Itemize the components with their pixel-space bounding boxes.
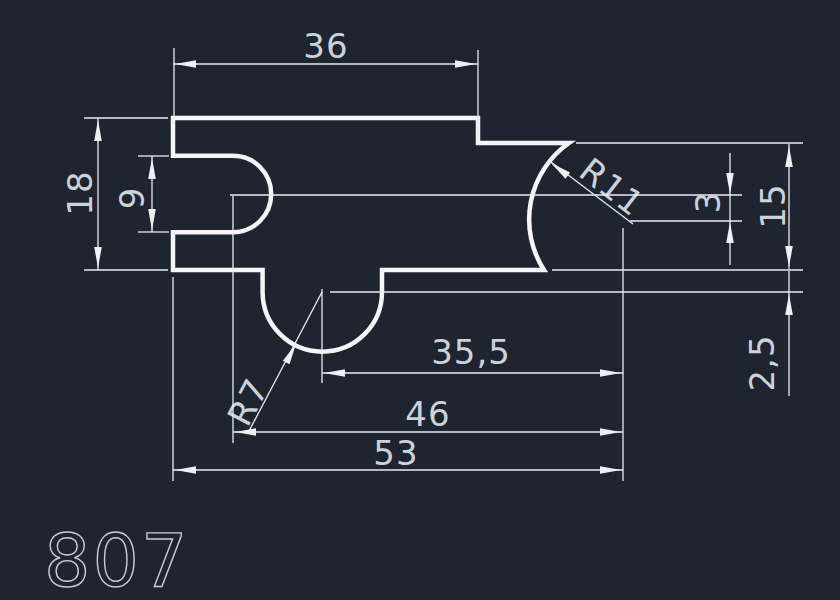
- dim-arrowhead: [235, 428, 256, 436]
- dimension-radius-r11: R11: [549, 150, 652, 225]
- dim-arrowhead: [600, 466, 621, 474]
- dim-arrowhead: [785, 294, 793, 315]
- dim-arrowhead: [785, 146, 793, 167]
- dim-arrowhead: [726, 222, 734, 243]
- dim-mid-length-label: 46: [405, 394, 450, 434]
- dim-arrowhead: [785, 246, 793, 267]
- dim-arrowhead: [148, 158, 156, 179]
- dim-arrowhead: [175, 466, 196, 474]
- dim-arrowhead: [94, 120, 102, 141]
- dimension-slot-height: 9: [112, 156, 169, 232]
- radius-r7-label: R7: [219, 372, 277, 433]
- cad-drawing-canvas[interactable]: 36 18 9 R11 3 15: [0, 0, 840, 600]
- dim-top-width-label: 36: [303, 26, 348, 66]
- dim-center-offset-label: 3: [688, 191, 728, 214]
- dimension-top-width: 36: [173, 26, 478, 141]
- dim-arrowhead: [600, 369, 621, 377]
- dimension-center-distance: 35,5: [322, 228, 623, 481]
- dim-step-depth-label: 2,5: [742, 334, 782, 391]
- dimension-center-offset: 3: [230, 153, 742, 265]
- dimension-mid-length: 46: [233, 196, 623, 443]
- dim-arrowhead: [455, 60, 476, 68]
- dimension-step-depth: 2,5: [330, 271, 803, 396]
- dimension-radius-r7: R7: [219, 292, 322, 432]
- dim-slot-height-label: 9: [112, 187, 152, 210]
- radius-r11-label: R11: [572, 150, 652, 225]
- dim-left-height-label: 18: [60, 170, 100, 215]
- dim-arrowhead: [175, 60, 196, 68]
- dim-arrowhead: [324, 369, 345, 377]
- dim-center-distance-label: 35,5: [431, 332, 511, 372]
- dim-arrowhead: [148, 209, 156, 230]
- dim-total-length-label: 53: [373, 433, 418, 473]
- dim-arrowhead: [94, 247, 102, 268]
- dim-arrowhead: [600, 428, 621, 436]
- drawing-sheet: 36 18 9 R11 3 15: [0, 0, 840, 600]
- dim-right-height-label: 15: [753, 183, 793, 228]
- part-number-label: 807: [44, 518, 189, 600]
